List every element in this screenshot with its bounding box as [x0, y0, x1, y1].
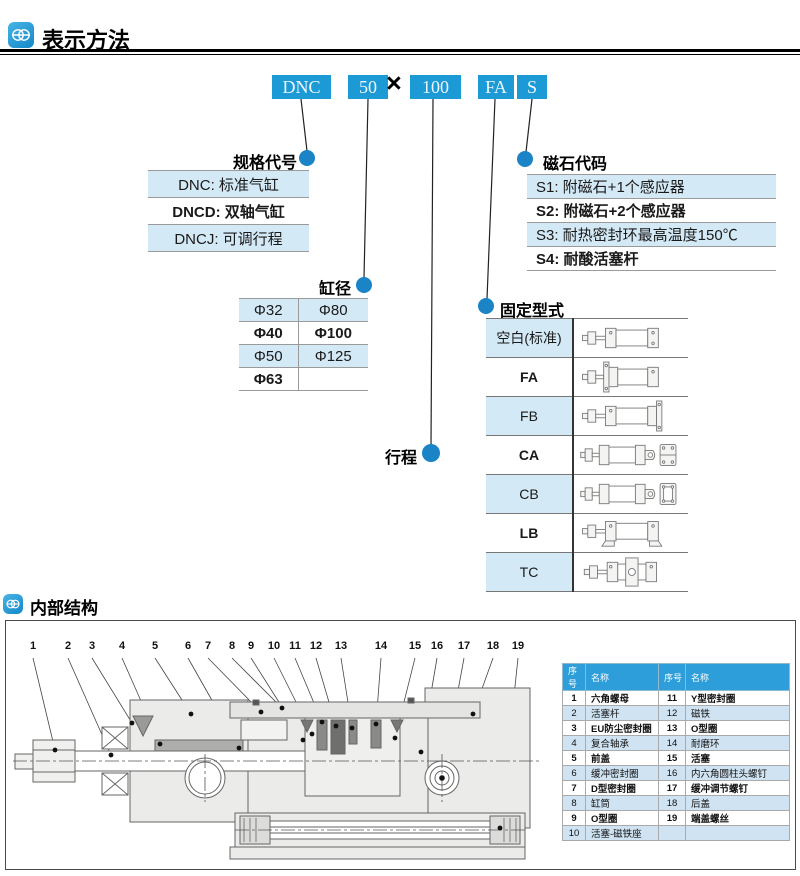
part-name: 活塞杆 [586, 706, 659, 721]
mount-row-label: CA [486, 436, 573, 475]
part-no: 17 [659, 781, 686, 796]
part-no: 3 [563, 721, 586, 736]
mount-row-image [573, 475, 688, 514]
mount-icon-standard [579, 321, 683, 355]
bore-cell: Φ80 [298, 299, 368, 322]
part-name: 磁铁 [686, 706, 790, 721]
part-no: 2 [563, 706, 586, 721]
mount-row-label: TC [486, 553, 573, 592]
callout-number: 15 [409, 640, 421, 652]
code-box-bore: 50 [348, 75, 388, 99]
callout-number: 16 [431, 640, 443, 652]
parts-header: 名称 [586, 664, 659, 691]
part-name: 复合轴承 [586, 736, 659, 751]
part-no: 1 [563, 691, 586, 706]
section-logo-icon [3, 594, 23, 614]
callout-number: 17 [458, 640, 470, 652]
part-no: 11 [659, 691, 686, 706]
spec-row: DNCJ: 可调行程 [148, 225, 309, 252]
magnet-row: S1: 附磁石+1个感应器 [527, 175, 776, 199]
bore-cell [298, 368, 368, 391]
callout-number: 19 [512, 640, 524, 652]
mount-icon-fb [579, 399, 683, 433]
bore-cell: Φ125 [298, 345, 368, 368]
part-name: 六角螺母 [586, 691, 659, 706]
callout-number: 11 [289, 640, 301, 652]
callout-number: 4 [119, 640, 125, 652]
magnet-row: S3: 耐热密封环最高温度150℃ [527, 223, 776, 247]
callout-number: 6 [185, 640, 191, 652]
part-no: 12 [659, 706, 686, 721]
code-box-stroke: 100 [410, 75, 461, 99]
part-name: 活塞 [686, 751, 790, 766]
callout-number: 10 [268, 640, 280, 652]
callout-number: 7 [205, 640, 211, 652]
bore-cell: Φ100 [298, 322, 368, 345]
mount-icon-lb [579, 516, 683, 550]
parts-header: 序号 [563, 664, 586, 691]
magnet-row: S4: 耐酸活塞杆 [527, 247, 776, 271]
parts-header: 名称 [686, 664, 790, 691]
part-no: 13 [659, 721, 686, 736]
part-no: 16 [659, 766, 686, 781]
rings-logo-icon [5, 596, 21, 612]
mount-row-label: 空白(标准) [486, 319, 573, 358]
bore-table: Φ32 Φ80 Φ40 Φ100 Φ50 Φ125 Φ63 [239, 298, 368, 391]
callout-number: 13 [335, 640, 347, 652]
brand-logo-icon [8, 22, 34, 48]
callout-number: 1 [30, 640, 36, 652]
callout-number: 14 [375, 640, 387, 652]
mount-row-label: CB [486, 475, 573, 514]
callout-number: 5 [152, 640, 158, 652]
mount-row-image [573, 358, 688, 397]
code-box-model: DNC [272, 75, 331, 99]
magnet-code-label: 磁石代码 [543, 150, 607, 174]
part-name: 内六角圆柱头螺钉 [686, 766, 790, 781]
part-name: 缸筒 [586, 796, 659, 811]
part-no: 10 [563, 826, 586, 841]
part-name: 前盖 [586, 751, 659, 766]
spec-row: DNCD: 双轴气缸 [148, 198, 309, 225]
part-name: 后盖 [686, 796, 790, 811]
callout-number: 18 [487, 640, 499, 652]
spec-code-table: DNC: 标准气缸 DNCD: 双轴气缸 DNCJ: 可调行程 [148, 170, 309, 252]
bore-cell: Φ63 [239, 368, 298, 391]
callout-number: 12 [310, 640, 322, 652]
rings-logo-icon [10, 24, 32, 46]
mount-icon-fa [579, 360, 683, 394]
mounting-table: 空白(标准) FA [486, 318, 688, 592]
bore-cell: Φ50 [239, 345, 298, 368]
part-name: 活塞-磁铁座 [586, 826, 659, 841]
part-name: O型圈 [686, 721, 790, 736]
part-no [659, 826, 686, 841]
part-name: 缓冲密封圈 [586, 766, 659, 781]
header-rule-thin [0, 54, 800, 55]
part-no: 5 [563, 751, 586, 766]
part-name: 缓冲调节螺钉 [686, 781, 790, 796]
part-name: 端盖螺丝 [686, 811, 790, 826]
catalog-page: 表示方法 DNC 50 × 100 FA S 规格代号 DNC: 标准气缸 DN… [0, 0, 800, 876]
header-rule-thick [0, 49, 800, 52]
parts-header: 序号 [659, 664, 686, 691]
mount-icon-cb [579, 477, 683, 511]
callout-number: 2 [65, 640, 71, 652]
part-no: 19 [659, 811, 686, 826]
mount-row-label: FA [486, 358, 573, 397]
code-box-mount: FA [478, 75, 514, 99]
part-no: 8 [563, 796, 586, 811]
bore-label: 缸径 [251, 275, 351, 299]
part-name: 耐磨环 [686, 736, 790, 751]
mount-icon-tc [579, 555, 683, 589]
part-no: 4 [563, 736, 586, 751]
mount-row-label: LB [486, 514, 573, 553]
parts-list-table: 序号 名称 序号 名称 1 六角螺母 11 Y型密封圈 2 活塞杆 12 磁铁 … [562, 663, 790, 841]
part-no: 18 [659, 796, 686, 811]
mount-row-image [573, 397, 688, 436]
part-name: EU防尘密封圈 [586, 721, 659, 736]
mount-row-image [573, 514, 688, 553]
part-name: Y型密封圈 [686, 691, 790, 706]
cross-section-drawing [5, 628, 550, 866]
callout-number: 8 [229, 640, 235, 652]
bore-cell: Φ32 [239, 299, 298, 322]
mount-row-image [573, 436, 688, 475]
magnet-row: S2: 附磁石+2个感应器 [527, 199, 776, 223]
mount-icon-ca [579, 438, 683, 472]
mount-row-image [573, 553, 688, 592]
mount-row-image [573, 319, 688, 358]
code-box-magnet: S [517, 75, 547, 99]
bore-cell: Φ40 [239, 322, 298, 345]
part-name: O型圈 [586, 811, 659, 826]
part-no: 15 [659, 751, 686, 766]
callout-number: 3 [89, 640, 95, 652]
mount-row-label: FB [486, 397, 573, 436]
part-name [686, 826, 790, 841]
magnet-code-table: S1: 附磁石+1个感应器 S2: 附磁石+2个感应器 S3: 耐热密封环最高温… [527, 174, 776, 271]
stroke-label: 行程 [317, 444, 417, 468]
spec-row: DNC: 标准气缸 [148, 171, 309, 198]
part-no: 6 [563, 766, 586, 781]
part-no: 7 [563, 781, 586, 796]
multiply-sign: × [386, 68, 402, 99]
part-no: 14 [659, 736, 686, 751]
callout-number: 9 [248, 640, 254, 652]
internal-structure-title: 内部结构 [30, 594, 98, 619]
cylinder-cross-section: 1 2 3 4 5 6 7 8 9 10 11 12 13 14 15 16 1… [5, 628, 550, 866]
part-name: D型密封圈 [586, 781, 659, 796]
part-no: 9 [563, 811, 586, 826]
